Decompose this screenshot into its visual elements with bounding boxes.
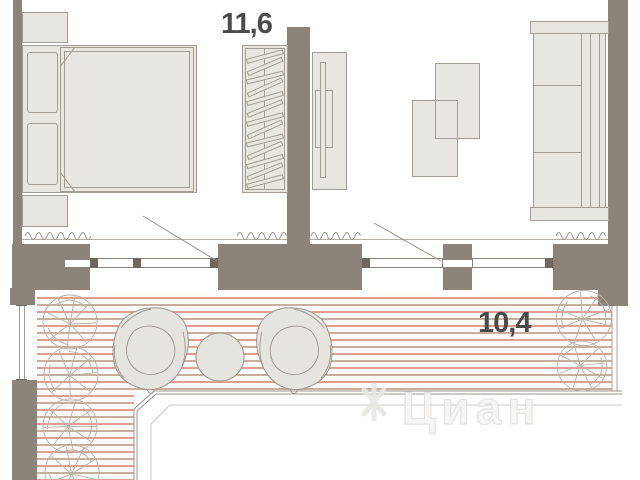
plant-icon [39, 439, 105, 480]
plants [33, 280, 622, 480]
curtain-wave-icon [25, 233, 606, 240]
area-label-terrace: 10,4 [478, 307, 530, 340]
plant-icon [39, 395, 102, 458]
watermark: Циан [364, 382, 541, 434]
floor-plan: Циан 11,6 10,4 [0, 0, 640, 480]
plan-overlay: Циан [0, 0, 640, 480]
terrace-edge-line [612, 306, 617, 391]
outdoor-armchair-left [113, 308, 188, 394]
plant-icon [546, 280, 621, 355]
outdoor-round-table [196, 333, 244, 381]
plant-icon [33, 336, 109, 412]
watermark-logo-icon [364, 385, 384, 419]
plant-icon [43, 295, 97, 349]
area-label-room: 11,6 [221, 8, 272, 41]
blanket-fold-icon [60, 47, 75, 192]
plant-icon [550, 334, 614, 398]
outdoor-armchair-right [257, 308, 332, 394]
watermark-text: Циан [402, 382, 541, 434]
door-swing-line [143, 216, 441, 261]
